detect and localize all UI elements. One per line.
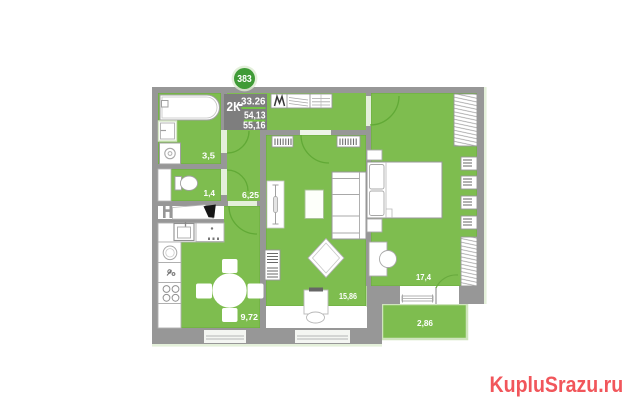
svg-text:KupluSrazu.ru: KupluSrazu.ru [490, 373, 624, 398]
svg-text:383: 383 [237, 74, 252, 85]
svg-text:3,5: 3,5 [202, 151, 215, 161]
svg-text:1,4: 1,4 [204, 188, 216, 198]
svg-text:33.26: 33.26 [241, 97, 266, 108]
svg-text:55,16: 55,16 [243, 121, 266, 132]
svg-text:2К: 2К [227, 100, 241, 114]
svg-text:2,86: 2,86 [417, 318, 433, 328]
svg-text:6,25: 6,25 [242, 190, 259, 200]
svg-text:17,4: 17,4 [416, 272, 431, 282]
svg-text:15,86: 15,86 [339, 291, 357, 301]
svg-text:9,72: 9,72 [241, 312, 259, 322]
